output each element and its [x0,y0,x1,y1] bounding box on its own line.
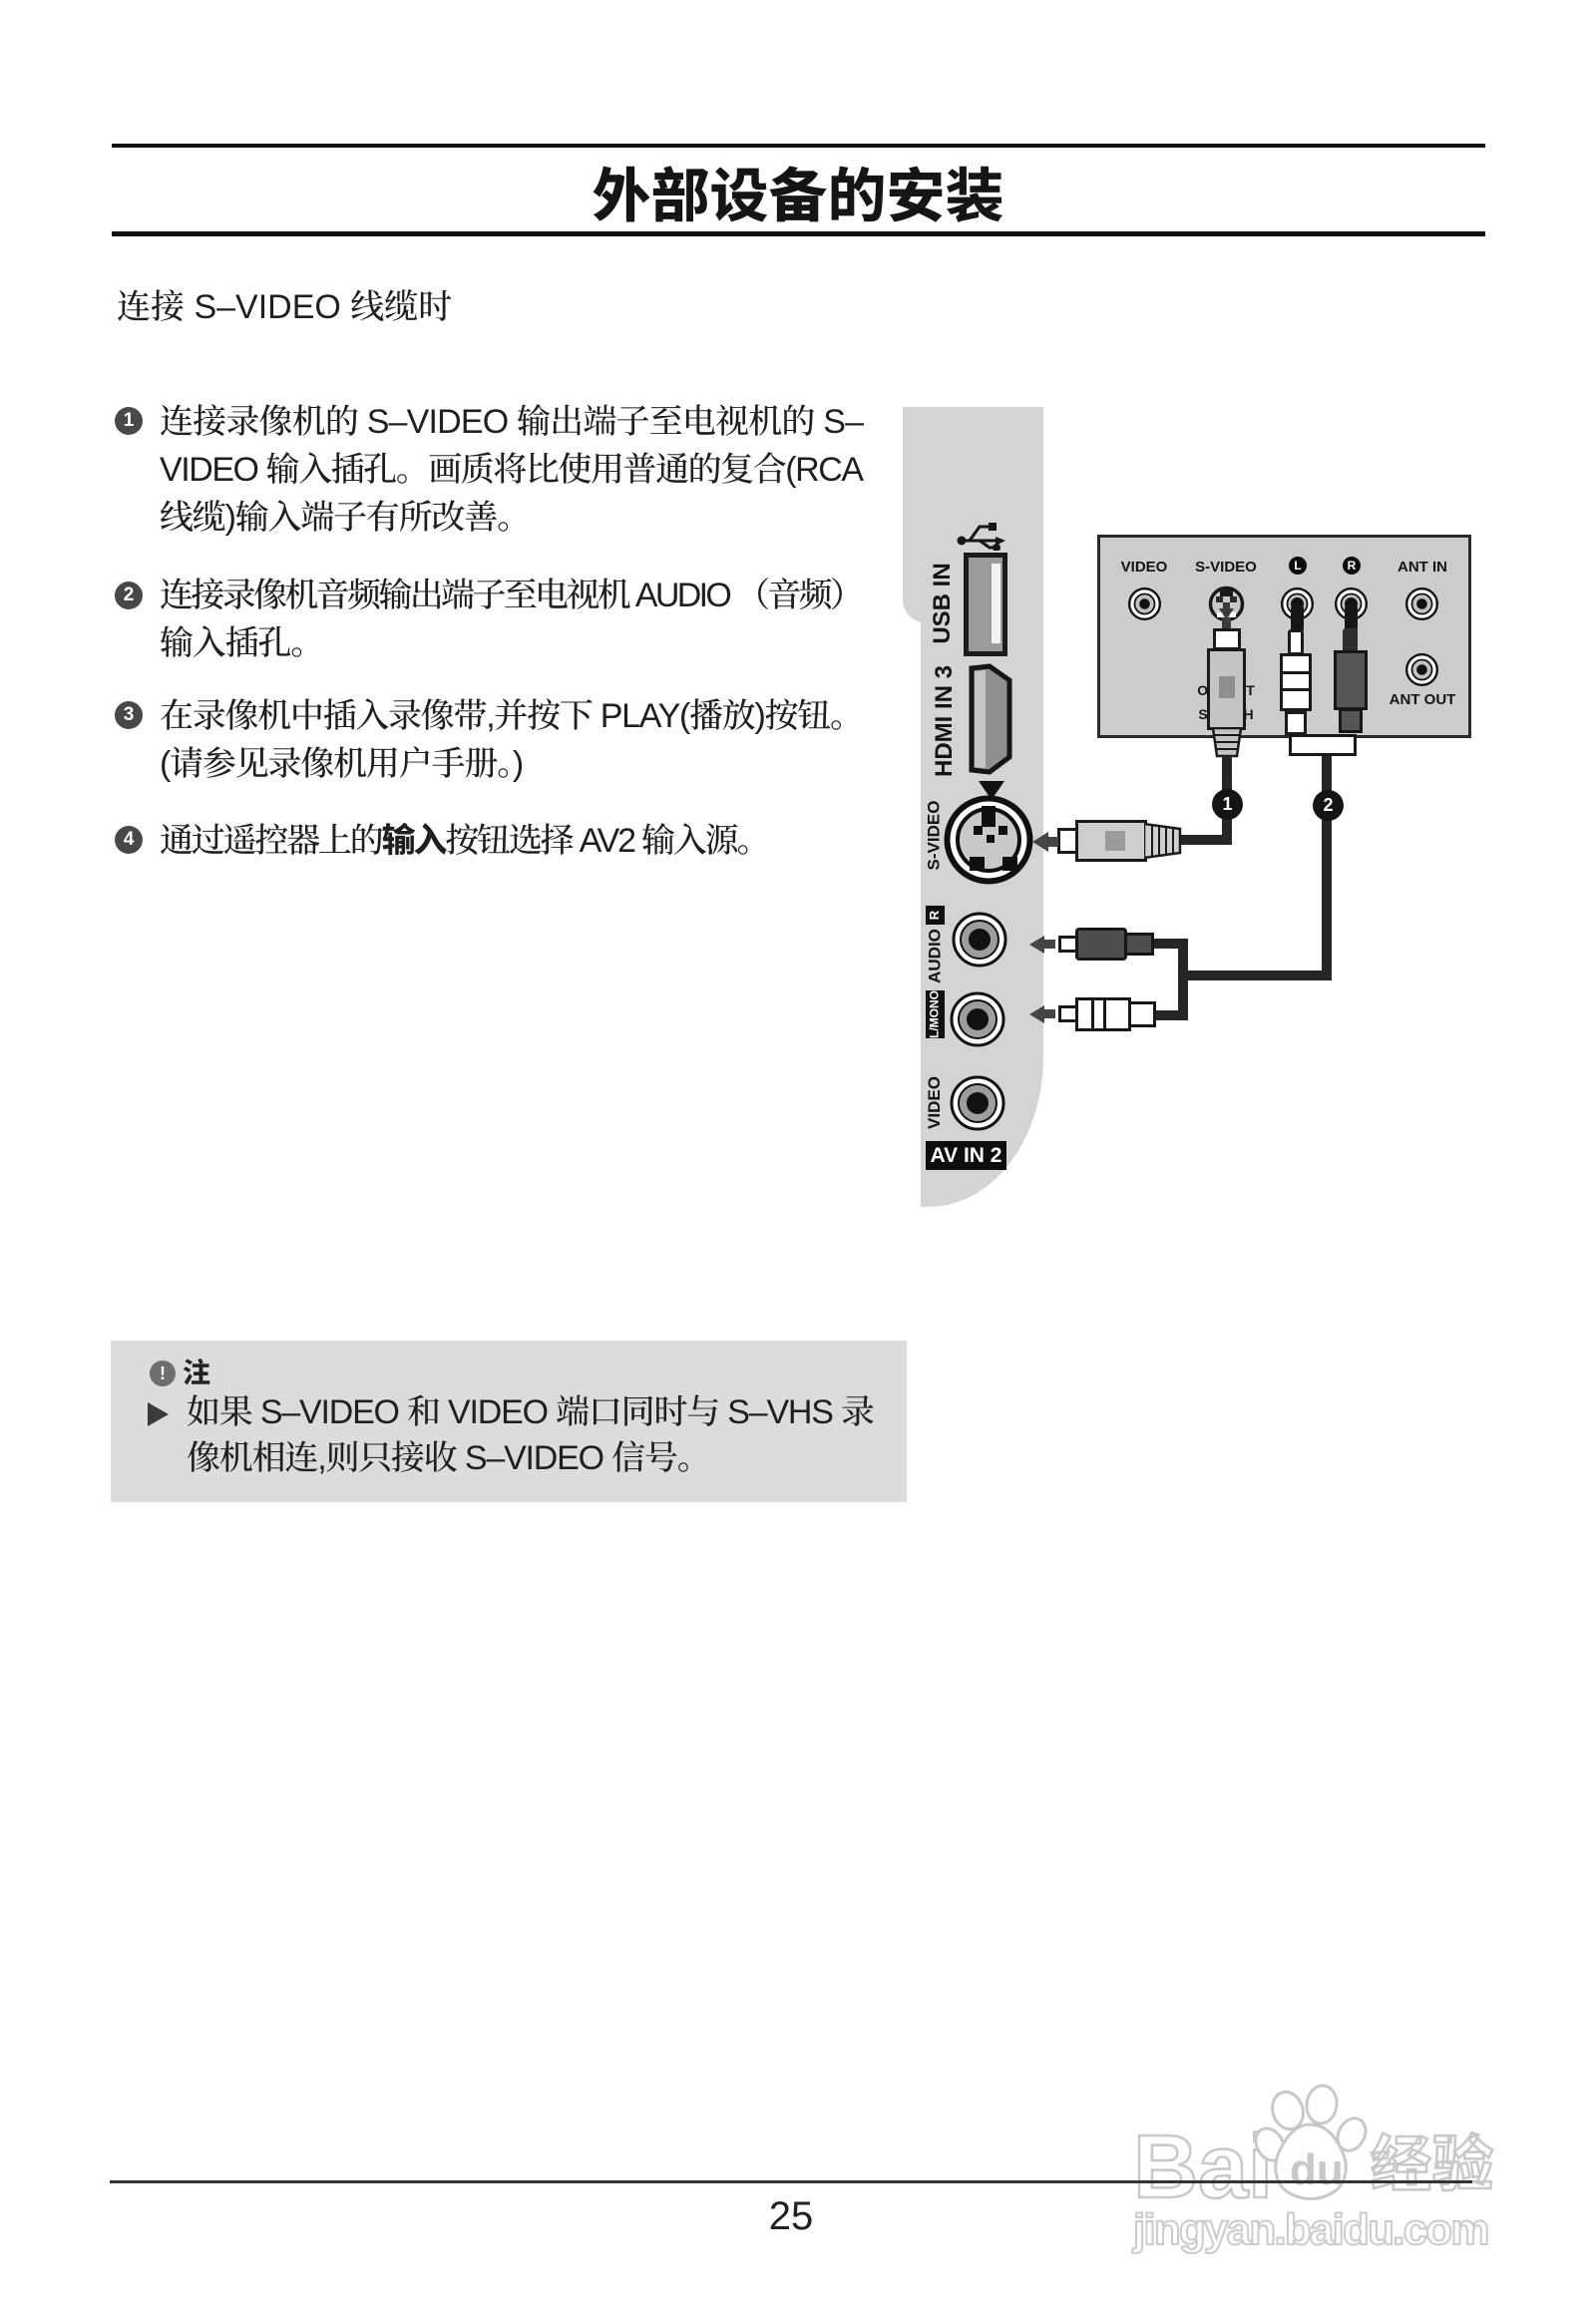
svg-text:du: du [1290,2145,1344,2194]
